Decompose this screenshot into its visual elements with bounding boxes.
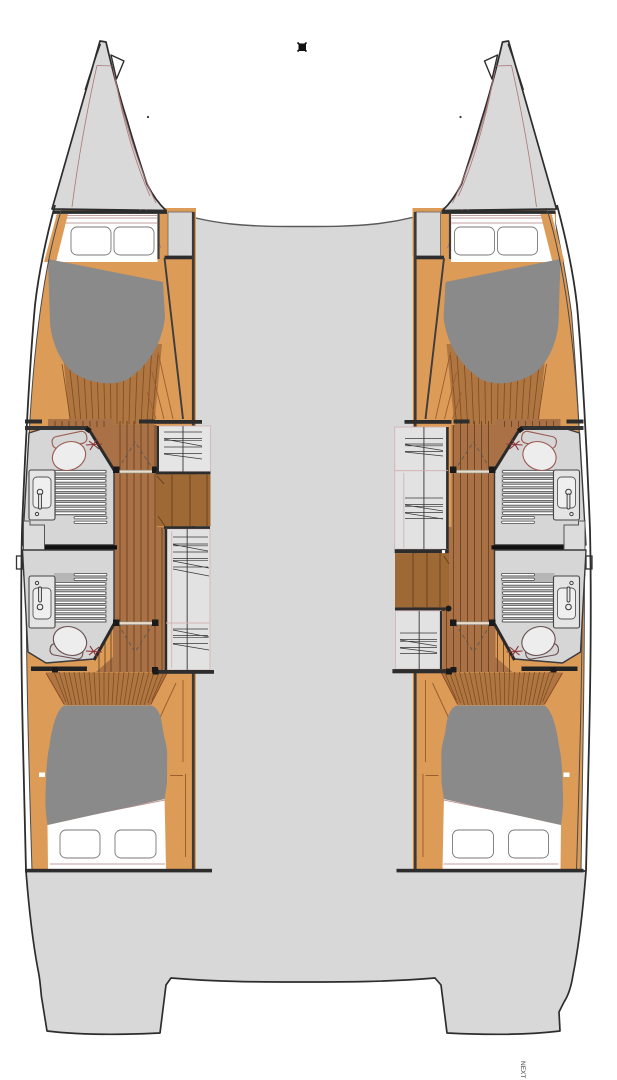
svg-text:NEXT: NEXT: [519, 1061, 526, 1078]
